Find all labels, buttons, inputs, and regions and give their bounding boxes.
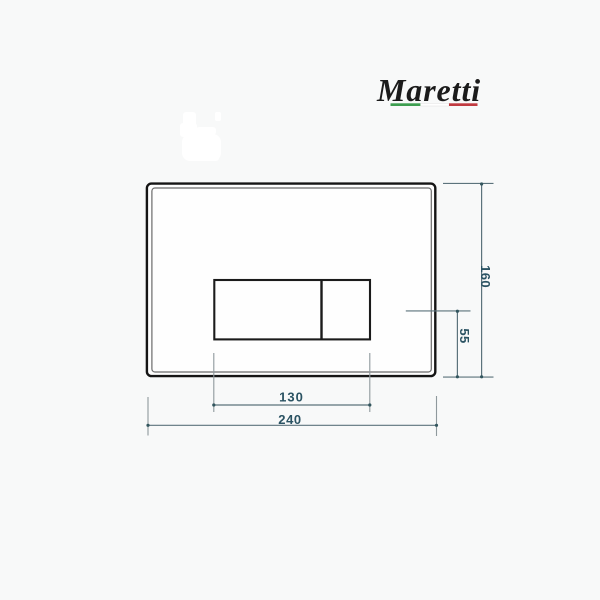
svg-text:55: 55	[457, 328, 472, 343]
svg-text:160: 160	[478, 265, 493, 288]
svg-text:240: 240	[278, 412, 302, 427]
svg-text:Maretti: Maretti	[376, 72, 481, 108]
svg-text:130: 130	[279, 390, 304, 405]
